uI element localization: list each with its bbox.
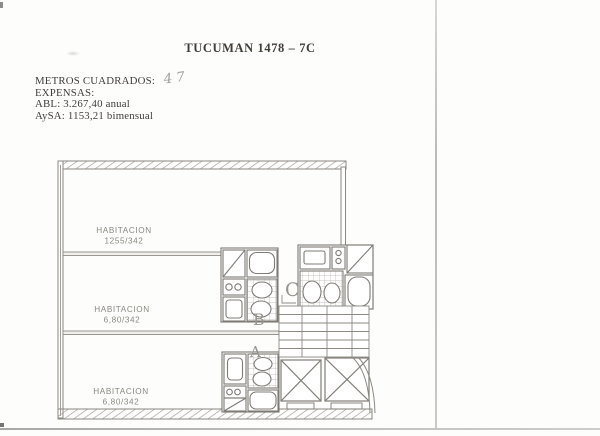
toilet-icon <box>303 281 321 303</box>
wall-top <box>59 161 346 169</box>
room-1-dims: 1255/342 <box>105 237 144 246</box>
wall-bottom <box>58 409 372 419</box>
bidet-icon <box>324 283 340 303</box>
scan-edge-tick <box>0 423 4 427</box>
bath-kitchen-unit-a <box>222 352 279 412</box>
room-3-label: HABITACION <box>93 387 148 396</box>
room-3-dims: 6,80/342 <box>103 398 140 407</box>
unit-b-label: B <box>253 310 265 329</box>
unit-a-label: A <box>249 343 261 361</box>
toilet-icon <box>252 282 272 298</box>
room-1-label: HABITACION <box>96 226 151 235</box>
bidet-icon <box>253 372 271 386</box>
room-2-label: HABITACION <box>94 305 149 314</box>
page-edge-vertical <box>435 0 437 429</box>
wall-divider-room1-room2 <box>63 252 222 256</box>
bath-kitchen-unit-c <box>298 245 373 309</box>
unit-c-label: C <box>285 279 300 301</box>
elevator-shafts <box>281 358 369 409</box>
room-2-dims: 6,80/342 <box>104 316 141 325</box>
floor-plan: HABITACION 1255/342 HABITACION 6,80/342 … <box>0 0 600 436</box>
scan-corner-mark <box>0 2 3 8</box>
staircase <box>279 306 369 357</box>
scan-smudge <box>66 51 80 56</box>
page-edge-horizontal <box>0 428 600 430</box>
wall-divider-room2-room3 <box>63 331 279 335</box>
scanned-document-page: TUCUMAN 1478 – 7C METROS CUADRADOS:47 EX… <box>0 0 600 436</box>
bath-kitchen-unit-b <box>221 248 278 322</box>
wall-right-upper <box>341 167 346 247</box>
